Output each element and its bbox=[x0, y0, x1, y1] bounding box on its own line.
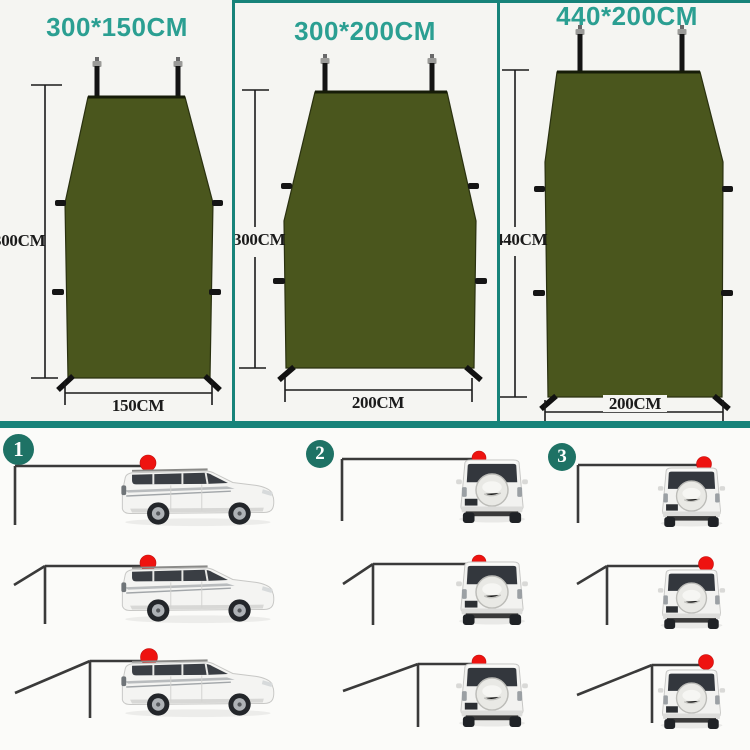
side-view-suv-icon bbox=[112, 563, 278, 625]
rear-view-suv-icon bbox=[454, 458, 530, 524]
rear-view-suv-icon bbox=[657, 568, 726, 630]
rear-view-suv-icon bbox=[454, 662, 530, 728]
rear-view-suv-icon bbox=[657, 668, 726, 730]
side-view-suv-icon bbox=[112, 466, 278, 528]
product-infographic: { "panels": [ {"title": "300*150CM", "he… bbox=[0, 0, 750, 750]
side-view-suv-icon bbox=[112, 657, 278, 719]
rear-view-suv-icon bbox=[454, 560, 530, 626]
awning-setup-lines bbox=[0, 0, 750, 750]
rear-view-suv-icon bbox=[657, 466, 726, 528]
